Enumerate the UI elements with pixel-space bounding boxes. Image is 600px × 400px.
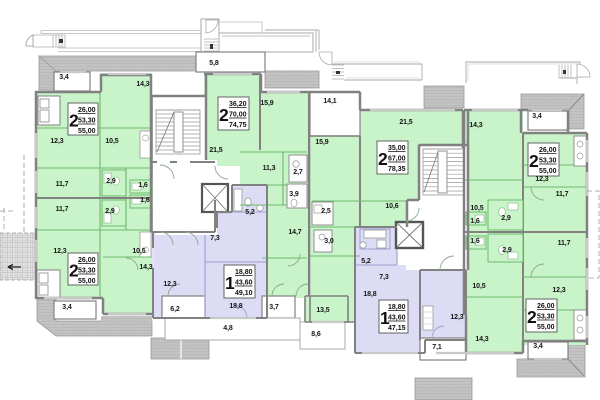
svg-text:2,9: 2,9 — [501, 215, 511, 222]
svg-text:5,2: 5,2 — [361, 258, 371, 265]
svg-text:10,5: 10,5 — [472, 283, 485, 290]
svg-text:2: 2 — [219, 105, 229, 125]
svg-text:1,6: 1,6 — [140, 197, 150, 204]
svg-text:10,5: 10,5 — [105, 138, 118, 145]
svg-text:5,2: 5,2 — [245, 209, 255, 216]
svg-text:43,60: 43,60 — [388, 314, 406, 321]
svg-text:14,3: 14,3 — [475, 336, 488, 343]
svg-text:43,60: 43,60 — [235, 279, 253, 286]
svg-text:74,75: 74,75 — [229, 122, 247, 129]
svg-text:7,3: 7,3 — [210, 235, 220, 242]
svg-text:55,00: 55,00 — [539, 168, 557, 175]
svg-text:26,00: 26,00 — [78, 257, 96, 264]
svg-text:2,9: 2,9 — [106, 178, 116, 185]
svg-text:7,1: 7,1 — [432, 344, 442, 351]
svg-text:26,00: 26,00 — [539, 147, 557, 154]
svg-text:78,35: 78,35 — [388, 166, 406, 173]
svg-text:35,00: 35,00 — [388, 145, 406, 152]
svg-text:21,5: 21,5 — [399, 119, 412, 126]
svg-text:15,9: 15,9 — [260, 100, 273, 107]
svg-text:53,30: 53,30 — [539, 157, 557, 164]
svg-text:5,8: 5,8 — [209, 60, 219, 67]
svg-text:3,4: 3,4 — [533, 343, 543, 350]
svg-text:7,3: 7,3 — [379, 274, 389, 281]
svg-text:53,30: 53,30 — [78, 117, 96, 124]
svg-text:2,9: 2,9 — [502, 247, 512, 254]
svg-text:55,00: 55,00 — [78, 128, 96, 135]
svg-text:70,00: 70,00 — [229, 111, 247, 118]
svg-text:14,3: 14,3 — [136, 81, 149, 88]
svg-text:55,00: 55,00 — [78, 278, 96, 285]
svg-text:3,9: 3,9 — [289, 191, 299, 198]
svg-text:2,9: 2,9 — [105, 208, 115, 215]
svg-text:49,10: 49,10 — [235, 290, 253, 297]
svg-text:10,6: 10,6 — [385, 203, 398, 210]
svg-text:10,5: 10,5 — [132, 248, 145, 255]
svg-text:11,7: 11,7 — [556, 191, 569, 198]
svg-text:21,5: 21,5 — [209, 147, 222, 154]
svg-text:1,6: 1,6 — [470, 238, 480, 245]
svg-text:14,3: 14,3 — [139, 264, 152, 271]
svg-text:53,30: 53,30 — [537, 313, 555, 320]
svg-text:11,7: 11,7 — [558, 240, 571, 247]
svg-text:3,0: 3,0 — [324, 238, 334, 245]
svg-text:18,8: 18,8 — [363, 291, 376, 298]
svg-text:13,5: 13,5 — [316, 307, 329, 314]
svg-text:4,8: 4,8 — [223, 325, 233, 332]
svg-text:2,5: 2,5 — [321, 208, 331, 215]
svg-text:12,3: 12,3 — [163, 281, 176, 288]
svg-text:26,00: 26,00 — [537, 303, 555, 310]
svg-text:8,6: 8,6 — [311, 331, 321, 338]
svg-text:18,80: 18,80 — [235, 269, 253, 276]
svg-text:18,80: 18,80 — [388, 304, 406, 311]
svg-text:12,3: 12,3 — [450, 314, 463, 321]
svg-text:10,5: 10,5 — [470, 205, 483, 212]
svg-text:11,7: 11,7 — [56, 206, 69, 213]
svg-text:53,30: 53,30 — [78, 267, 96, 274]
svg-text:14,7: 14,7 — [288, 229, 301, 236]
svg-text:3,4: 3,4 — [532, 113, 542, 120]
svg-text:2,7: 2,7 — [293, 169, 303, 176]
svg-text:55,00: 55,00 — [537, 324, 555, 331]
svg-text:67,00: 67,00 — [388, 155, 406, 162]
svg-text:47,15: 47,15 — [388, 325, 406, 332]
svg-text:2: 2 — [529, 151, 539, 171]
svg-text:12,3: 12,3 — [50, 138, 63, 145]
svg-text:3,4: 3,4 — [59, 74, 69, 81]
svg-text:18,8: 18,8 — [229, 303, 242, 310]
svg-text:12,3: 12,3 — [53, 248, 66, 255]
svg-text:3,7: 3,7 — [269, 304, 279, 311]
svg-text:2: 2 — [527, 307, 537, 327]
svg-text:1,6: 1,6 — [138, 182, 148, 189]
svg-text:12,3: 12,3 — [552, 287, 565, 294]
svg-text:2: 2 — [378, 149, 388, 169]
svg-text:12,3: 12,3 — [535, 176, 548, 183]
svg-text:11,3: 11,3 — [263, 165, 276, 172]
svg-text:1,6: 1,6 — [470, 218, 480, 225]
svg-text:1: 1 — [225, 273, 235, 293]
svg-text:11,7: 11,7 — [56, 181, 69, 188]
svg-text:3,4: 3,4 — [62, 304, 72, 311]
svg-text:14,3: 14,3 — [469, 122, 482, 129]
svg-text:6,2: 6,2 — [170, 306, 180, 313]
svg-text:14,1: 14,1 — [323, 98, 336, 105]
svg-text:36,20: 36,20 — [229, 101, 247, 108]
svg-text:26,00: 26,00 — [78, 107, 96, 114]
svg-text:15,9: 15,9 — [315, 139, 328, 146]
